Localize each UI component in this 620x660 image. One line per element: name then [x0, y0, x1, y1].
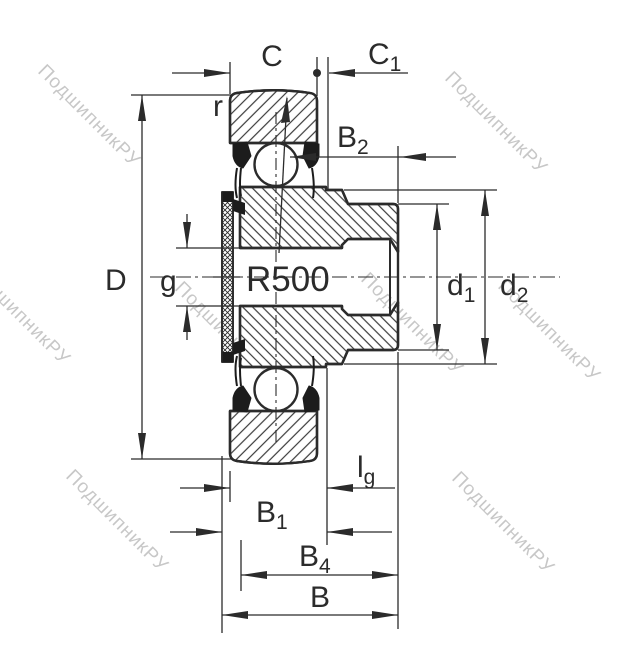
- centerlines: [150, 112, 560, 442]
- label-B4-sub: 4: [319, 555, 331, 578]
- label-D: D: [105, 264, 127, 297]
- label-R500: R500: [246, 260, 330, 299]
- bearing-cross-section-drawing: ПодшипникРУ ПодшипникРУ ПодшипникРУ Подш…: [0, 0, 620, 660]
- arrow-down-icon: [138, 433, 146, 459]
- label-C1-sub: 1: [390, 53, 402, 76]
- inner-ring-bottom-section: [240, 302, 398, 367]
- watermark: ПодшипникРУ: [0, 259, 74, 370]
- arrow-left-icon: [327, 484, 353, 492]
- label-lg-sub: g: [364, 466, 376, 489]
- arrow-right-icon: [196, 528, 222, 536]
- label-B4-base: B: [299, 540, 319, 573]
- arrow-down-icon: [183, 222, 191, 248]
- label-B1: B1: [256, 496, 288, 534]
- dimension-dot: [313, 69, 321, 77]
- label-g: g: [160, 265, 177, 298]
- watermark: ПодшипникРУ: [61, 466, 172, 577]
- label-d2-base: d: [500, 269, 517, 302]
- label-B4: B4: [299, 540, 331, 578]
- slinger-top-cap: [223, 192, 234, 202]
- label-d1-sub: 1: [464, 284, 476, 307]
- watermark: ПодшипникРУ: [440, 68, 551, 179]
- arrow-right-icon: [204, 69, 230, 77]
- bearing-drawing-page: ПодшипникРУ ПодшипникРУ ПодшипникРУ Подш…: [0, 0, 620, 660]
- label-C1-base: C: [368, 38, 390, 71]
- label-lg-base: l: [357, 451, 364, 484]
- watermark: ПодшипникРУ: [447, 468, 558, 579]
- arrow-left-icon: [327, 528, 353, 536]
- arrow-right-icon: [372, 571, 398, 579]
- arrow-up-icon: [138, 95, 146, 121]
- arrow-up-icon: [481, 190, 489, 216]
- label-B: B: [310, 581, 330, 614]
- slinger-bottom-cap: [223, 352, 234, 362]
- arrow-left-icon: [329, 69, 355, 77]
- label-B1-base: B: [256, 496, 276, 529]
- label-B2-sub: 2: [357, 136, 369, 159]
- label-B1-sub: 1: [276, 511, 288, 534]
- label-r: r: [213, 90, 223, 123]
- arrow-up-icon: [433, 204, 441, 230]
- label-d2: d2: [500, 269, 528, 307]
- arrow-left-icon: [241, 571, 267, 579]
- label-C: C: [261, 40, 283, 73]
- outer-ring-bottom-section: [230, 411, 317, 464]
- label-d1-base: d: [447, 269, 464, 302]
- watermark: ПодшипникРУ: [33, 61, 144, 172]
- arrow-left-icon: [400, 153, 426, 161]
- inner-ring-top-section: [240, 187, 398, 252]
- label-B2: B2: [337, 121, 369, 159]
- arrow-right-icon: [372, 611, 398, 619]
- arrow-down-icon: [481, 338, 489, 364]
- label-d2-sub: 2: [517, 284, 529, 307]
- label-B2-base: B: [337, 121, 357, 154]
- outer-ring-top-section: [230, 90, 317, 143]
- arrow-left-icon: [222, 611, 248, 619]
- arrow-right-icon: [204, 484, 230, 492]
- label-lg: lg: [357, 451, 375, 489]
- label-C1: C1: [368, 38, 401, 76]
- label-d1: d1: [447, 269, 475, 307]
